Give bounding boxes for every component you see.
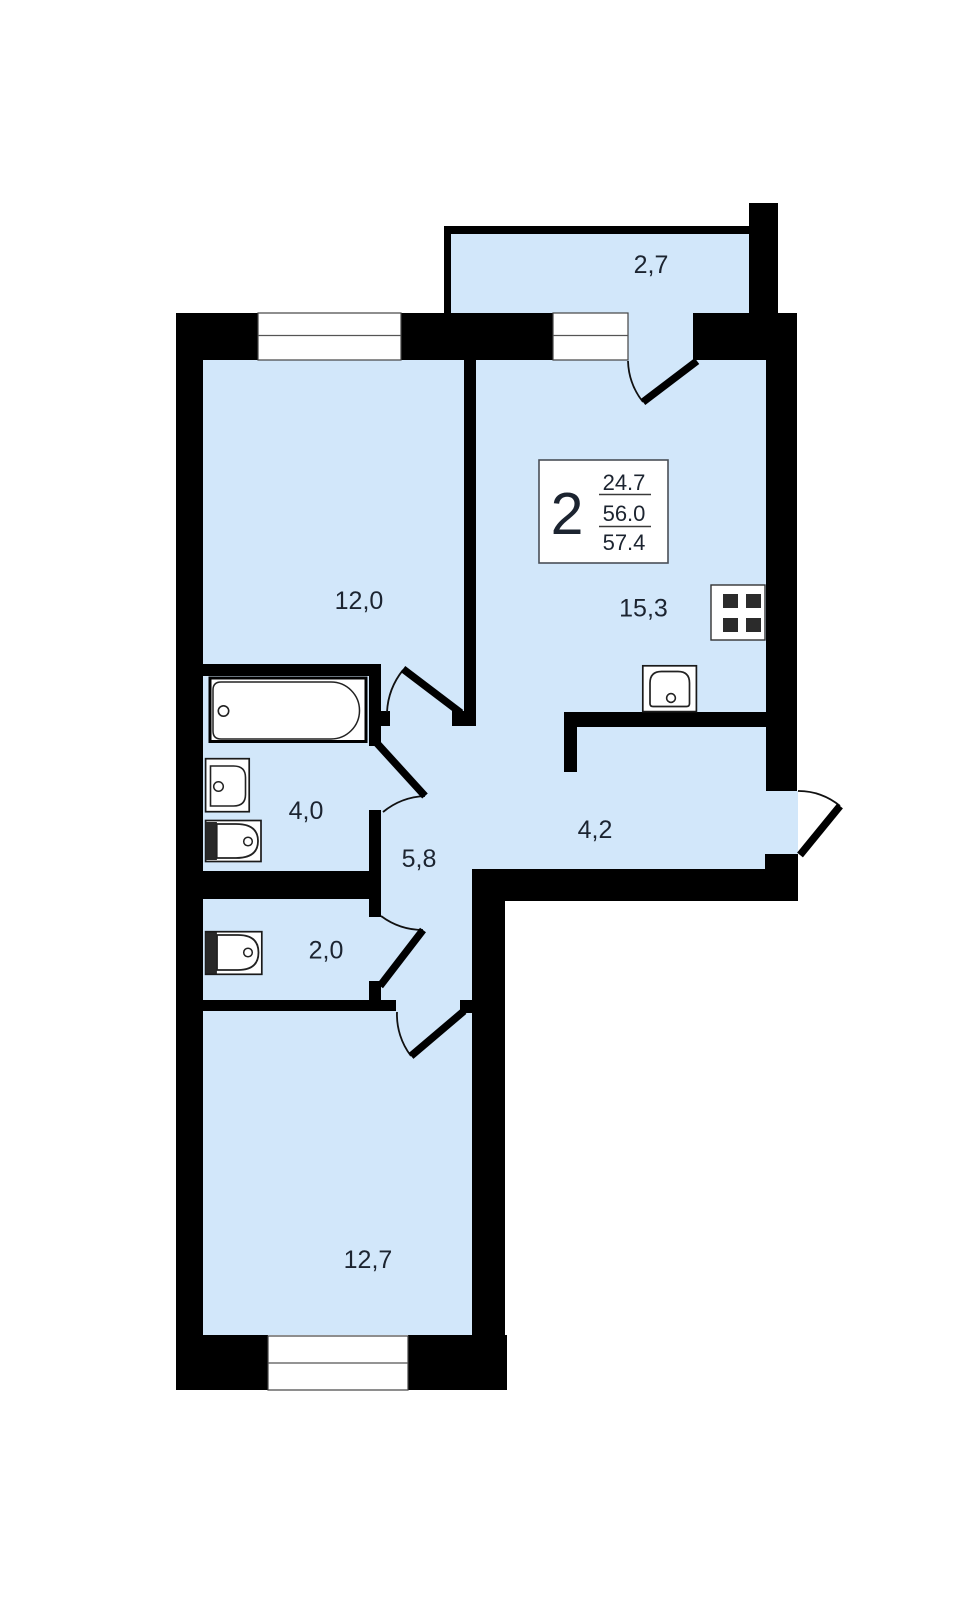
svg-text:15,3: 15,3 [619,595,668,623]
svg-text:12,0: 12,0 [335,587,384,615]
svg-text:4,2: 4,2 [578,816,613,844]
svg-text:4,0: 4,0 [289,797,324,825]
svg-text:2: 2 [551,481,584,547]
svg-text:2,0: 2,0 [309,937,344,965]
svg-text:12,7: 12,7 [344,1246,393,1274]
svg-text:24.7: 24.7 [603,470,646,495]
svg-text:57.4: 57.4 [603,530,646,555]
svg-text:56.0: 56.0 [603,501,646,526]
svg-text:5,8: 5,8 [402,845,437,873]
svg-text:2,7: 2,7 [634,251,669,279]
